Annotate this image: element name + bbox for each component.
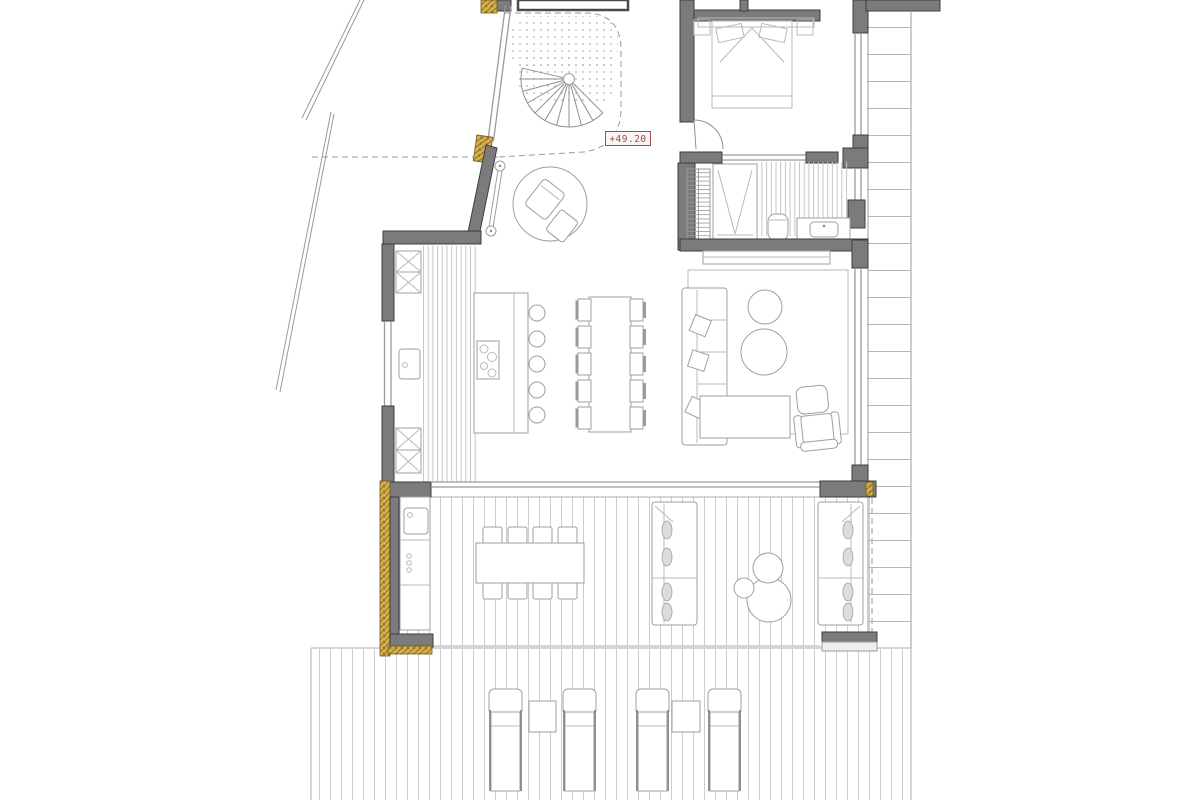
- kitchen-island: [474, 293, 528, 433]
- bar-stools: [529, 305, 545, 423]
- stool-4: [529, 382, 545, 398]
- bolster: [662, 521, 672, 539]
- floor-plan-drawing: [0, 0, 1200, 800]
- sun-lounger: [563, 689, 596, 791]
- stool-2: [529, 331, 545, 347]
- outdoor-chair: [483, 527, 502, 544]
- bolster: [662, 583, 672, 601]
- bedroom-door-leaf: [694, 120, 696, 149]
- chair: [630, 407, 643, 429]
- wall-entry-top: [497, 0, 511, 11]
- sun-lounger: [489, 689, 522, 791]
- terrace-se-step: [822, 642, 877, 651]
- dining-area: [577, 297, 645, 432]
- bed-mattress: [712, 21, 792, 108]
- lounger-body: [710, 712, 739, 791]
- chair: [630, 326, 643, 348]
- entry-lounge: [513, 167, 587, 243]
- lounger-side-table: [672, 701, 700, 732]
- bedroom-door-arc: [694, 120, 723, 149]
- sofa-chaise-bench: [700, 396, 790, 438]
- chair: [578, 299, 591, 321]
- outdoor-chair: [508, 582, 527, 599]
- round-table-small: [734, 578, 754, 598]
- stool-5: [529, 407, 545, 423]
- lower-decking: [311, 649, 911, 800]
- bolster: [843, 548, 853, 566]
- lounger-headrest: [563, 689, 596, 715]
- vanity: [797, 218, 850, 240]
- stool-1: [529, 305, 545, 321]
- entry-glazed-wall: [488, 5, 511, 141]
- kitchen-west-wall-upper: [382, 244, 394, 321]
- bath-north-wall-right: [806, 152, 838, 163]
- dining-chairs-left: [577, 299, 591, 429]
- outdoor-sofa-right: [818, 502, 863, 625]
- bath-north-lintel: [722, 155, 806, 160]
- dining-table: [589, 297, 631, 432]
- armchair-ottoman: [796, 385, 830, 415]
- coffee-table-large: [741, 329, 787, 375]
- outdoor-kitchen: [400, 497, 430, 630]
- bolster: [843, 521, 853, 539]
- living-north-wall: [680, 239, 868, 251]
- elevation-marker: +49.20: [605, 131, 651, 146]
- bedroom-wall-jog: [740, 0, 748, 11]
- boundary-line-lower: [276, 112, 334, 392]
- chair: [578, 326, 591, 348]
- lounger-headrest: [708, 689, 741, 715]
- kitchen-north-wall: [383, 231, 481, 244]
- double-bed: [694, 18, 814, 108]
- outdoor-chair: [558, 582, 577, 599]
- sink-basin: [399, 349, 420, 379]
- pillow-left: [716, 23, 744, 42]
- steps-treads: [868, 12, 911, 648]
- outdoor-chair: [558, 527, 577, 544]
- bath-east-pillar: [848, 200, 865, 228]
- outdoor-chair: [483, 582, 502, 599]
- vanity-basin: [810, 222, 838, 237]
- chair: [578, 380, 591, 402]
- lounger-body: [491, 712, 520, 791]
- kitchen-floor-stripes: [422, 246, 478, 482]
- living-east-window: [855, 268, 861, 465]
- shower: [713, 164, 757, 240]
- bolster: [662, 603, 672, 621]
- living-ne-corner: [852, 240, 868, 268]
- armchair: [791, 384, 842, 452]
- vanity-tap: [823, 225, 826, 228]
- bath-east-window: [855, 168, 861, 200]
- kitchen-west-window: [385, 321, 392, 406]
- upper-terrace-deck: [394, 497, 872, 646]
- sun-lounger: [636, 689, 669, 791]
- towel-radiator: [687, 169, 710, 240]
- chair: [630, 299, 643, 321]
- kitchen-sink: [399, 349, 420, 379]
- lounger-headrest: [636, 689, 669, 715]
- terrace-sw-wall: [390, 634, 433, 647]
- stool-3: [529, 356, 545, 372]
- chair: [578, 353, 591, 375]
- lounger-body: [565, 712, 594, 791]
- entry-hall: [467, 0, 628, 243]
- bedroom-north-wall: [694, 10, 820, 21]
- bathroom: [678, 148, 868, 250]
- bedroom-east-window: [855, 33, 861, 135]
- exterior-top-wall: [866, 0, 940, 11]
- lounger-headrest: [489, 689, 522, 715]
- floor-plan-canvas: +49.20: [0, 0, 1200, 800]
- outdoor-table: [476, 543, 584, 583]
- outdoor-chair: [533, 527, 552, 544]
- gold-hatch-terrace-sw: [388, 646, 432, 654]
- planter-top: [518, 0, 628, 10]
- bolster: [843, 583, 853, 601]
- kitchen-west-wall-lower: [382, 406, 394, 484]
- outdoor-sink: [404, 508, 428, 534]
- boundary-line-upper: [302, 0, 364, 120]
- outdoor-sofa-left: [652, 502, 697, 625]
- gold-hatch-terrace-west: [380, 481, 390, 656]
- bolster: [843, 603, 853, 621]
- gold-hatch-se: [866, 482, 873, 496]
- chair: [578, 407, 591, 429]
- side-steps: [868, 12, 911, 648]
- terrace-se-step-wall: [822, 632, 877, 642]
- sofa-right-body: [818, 502, 863, 625]
- coffee-table-small: [748, 290, 782, 324]
- living-south-glazing: [431, 482, 820, 487]
- outdoor-chair: [508, 527, 527, 544]
- chair: [630, 353, 643, 375]
- bed-fold-lines: [712, 28, 792, 96]
- stair-newel: [564, 74, 575, 85]
- lounger-side-table: [529, 701, 556, 732]
- bolster: [662, 548, 672, 566]
- dining-chairs-right: [630, 299, 645, 429]
- chair: [630, 380, 643, 402]
- toilet: [768, 214, 788, 240]
- kitchen: [382, 231, 545, 484]
- pivot-dot-top: [499, 165, 501, 167]
- terrace-decking: [394, 497, 872, 646]
- round-table-medium: [753, 553, 783, 583]
- sun-lounger: [708, 689, 741, 791]
- gold-hatch-entry-top: [481, 0, 497, 13]
- terrace-west-wall: [390, 497, 399, 637]
- lounger-body: [638, 712, 667, 791]
- bedroom-west-wall: [680, 0, 694, 122]
- sofa-left-body: [652, 502, 697, 625]
- armchair-seat: [801, 413, 835, 443]
- pivot-dot-bottom: [490, 230, 492, 232]
- bedroom-door: [694, 120, 723, 149]
- outdoor-chair: [533, 582, 552, 599]
- bath-north-wall-left: [680, 152, 722, 163]
- lower-deck: [311, 648, 911, 800]
